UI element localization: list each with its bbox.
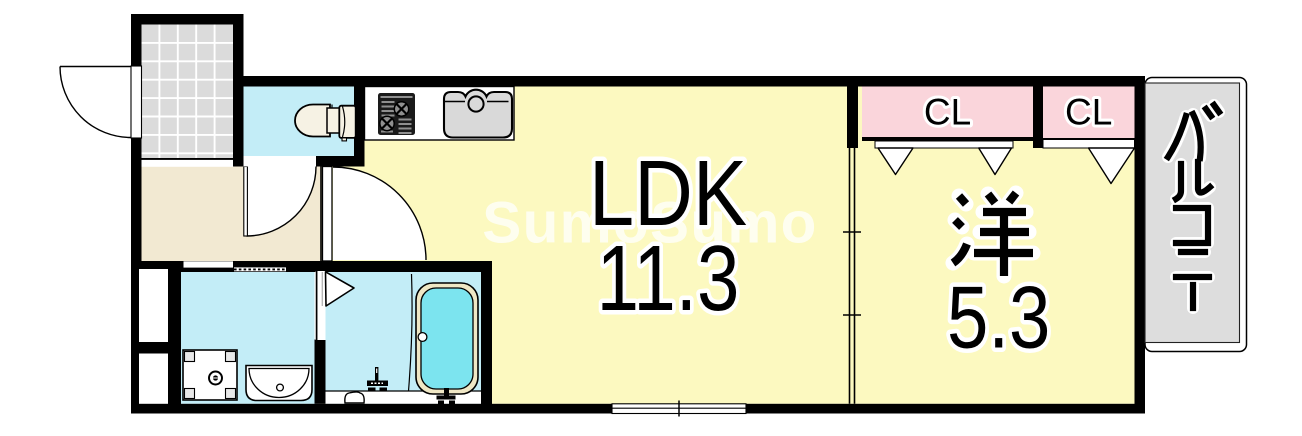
svg-text:11.3: 11.3 [597, 227, 740, 331]
svg-text:CL: CL [1065, 92, 1112, 133]
svg-text:CL: CL [924, 92, 971, 133]
svg-text:5.3: 5.3 [947, 269, 1050, 367]
